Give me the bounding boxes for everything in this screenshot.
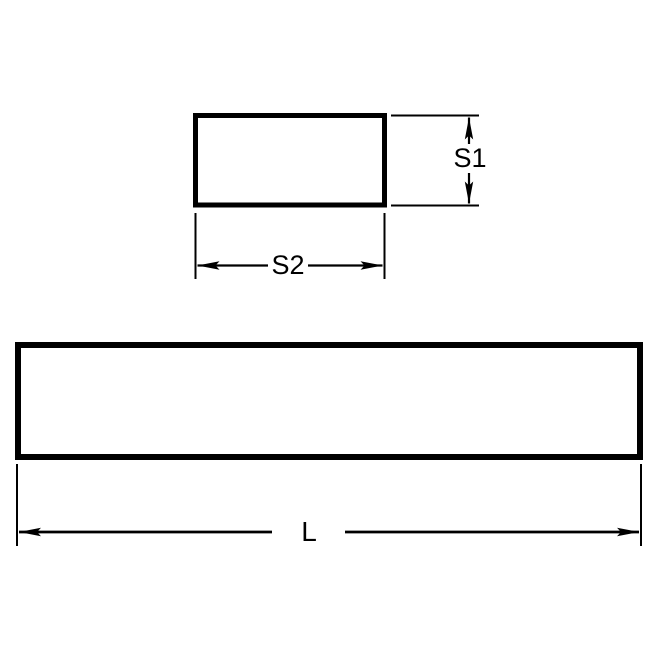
s2-dimension: S2 [196,213,385,280]
s1-label: S1 [453,143,486,173]
side-view: L [17,345,641,547]
cross-section-rectangle [196,116,385,206]
length-label: L [301,516,317,547]
keystock-dimension-diagram: S1 S2 L [0,0,670,670]
cross-section-view: S1 S2 [196,116,487,281]
side-view-rectangle [18,345,640,457]
s2-label: S2 [271,250,304,280]
length-dimension: L [17,464,641,547]
s1-dimension: S1 [391,116,487,206]
